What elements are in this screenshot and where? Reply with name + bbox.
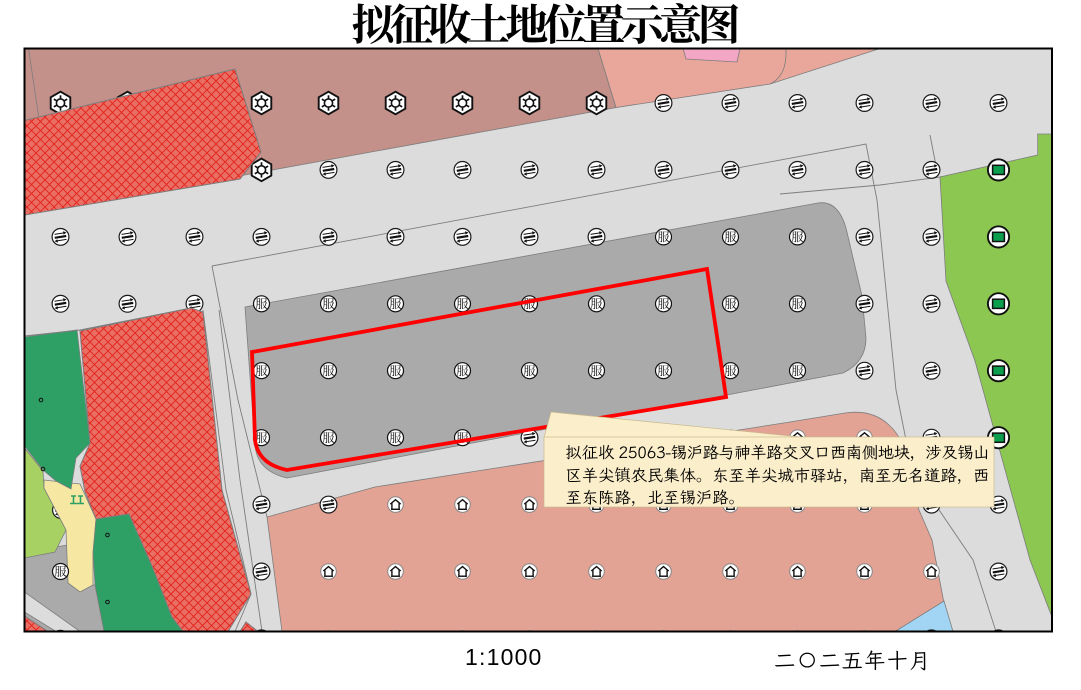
svg-text:1:1000: 1:1000 bbox=[465, 644, 543, 670]
